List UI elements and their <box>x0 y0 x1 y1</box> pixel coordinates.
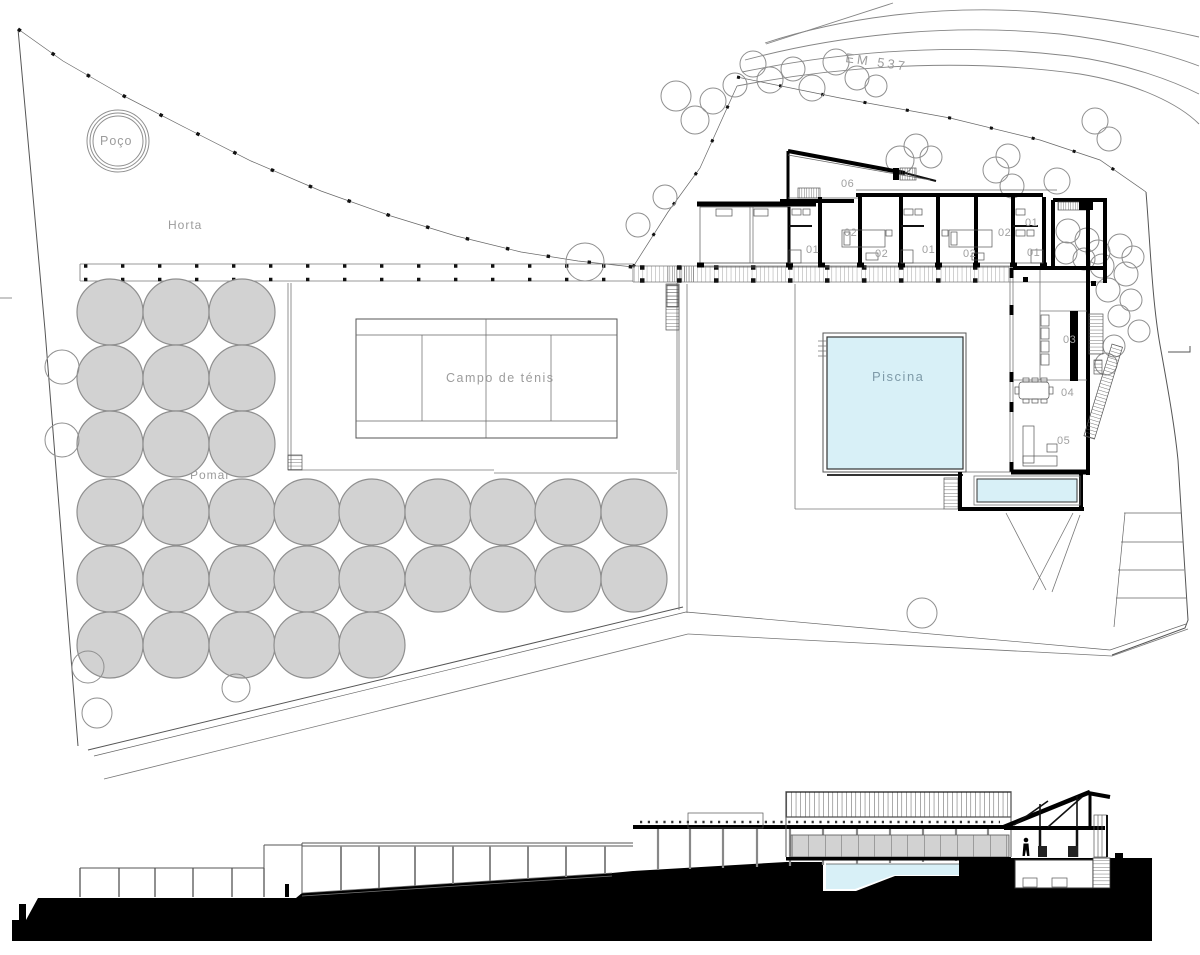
orchard-tree <box>535 546 601 612</box>
outline-tree <box>907 598 937 628</box>
outline-tree <box>1108 305 1130 327</box>
outline-tree <box>1120 289 1142 311</box>
orchard-tree <box>209 546 275 612</box>
outline-tree <box>1055 242 1077 264</box>
orchard-tree <box>77 411 143 477</box>
dining-table <box>1015 378 1053 403</box>
architectural-site-plan-and-section: EM 537 Poço Horta Pomar Campo de ténis <box>0 0 1200 955</box>
outline-tree <box>865 75 887 97</box>
outline-tree <box>222 674 250 702</box>
orchard-tree <box>339 612 405 678</box>
room-label: 03 <box>1063 334 1076 346</box>
room-label: 02 <box>963 248 976 260</box>
outline-tree <box>700 88 726 114</box>
section-truss <box>1004 792 1110 857</box>
orchard-tree <box>77 345 143 411</box>
orchard-tree <box>274 479 340 545</box>
terraced-plot <box>1114 513 1186 627</box>
room-label: 02 <box>844 227 857 239</box>
section-figure <box>1023 838 1030 856</box>
outline-tree <box>1082 108 1108 134</box>
main-pool: Piscina <box>795 284 966 509</box>
room-label: 01 <box>922 244 935 256</box>
orchard-tree <box>274 546 340 612</box>
outline-tree <box>1128 320 1150 342</box>
road-em537: EM 537 <box>737 3 1199 124</box>
orchard-tree <box>77 479 143 545</box>
orchard-tree <box>143 279 209 345</box>
orchard-tree <box>339 546 405 612</box>
outline-tree <box>661 81 691 111</box>
outline-tree <box>45 423 79 457</box>
orchard-tree <box>209 612 275 678</box>
orchard-tree <box>143 479 209 545</box>
orchard-tree <box>143 612 209 678</box>
orchard-tree <box>77 612 143 678</box>
outline-tree <box>983 157 1009 183</box>
secondary-pool-terrace <box>958 470 1084 592</box>
orchard-tree <box>77 279 143 345</box>
outline-tree <box>1056 219 1080 243</box>
outline-tree <box>920 146 942 168</box>
tennis-label: Campo de ténis <box>446 371 555 385</box>
orchard-tree <box>143 546 209 612</box>
sofa <box>1023 426 1057 466</box>
orchard-trees <box>77 279 667 678</box>
outline-tree <box>781 57 805 81</box>
garden-label: Horta <box>168 218 202 232</box>
outline-tree <box>904 134 928 158</box>
orchard-tree <box>274 612 340 678</box>
pergola-row <box>80 264 633 281</box>
outline-tree <box>1097 127 1121 151</box>
carport <box>697 204 816 263</box>
outline-tree <box>45 350 79 384</box>
room-label: 02 <box>998 227 1011 239</box>
orchard-tree <box>601 546 667 612</box>
orchard-tree <box>535 479 601 545</box>
orchard-tree <box>143 411 209 477</box>
orchard-tree <box>601 479 667 545</box>
room-label: 06 <box>841 178 854 190</box>
outline-tree <box>1108 234 1132 258</box>
tennis-court: Campo de ténis <box>356 319 617 438</box>
section-ground <box>12 858 1152 941</box>
room-label: 04 <box>1061 387 1074 399</box>
orchard-tree <box>143 345 209 411</box>
well-label: Poço <box>100 134 133 148</box>
room-label: 05 <box>1057 435 1070 447</box>
outline-tree <box>626 213 650 237</box>
outline-tree <box>653 185 677 209</box>
section-drawing <box>12 792 1152 941</box>
orchard-tree <box>405 546 471 612</box>
room-label: 01 <box>1025 217 1038 229</box>
outline-tree <box>740 51 766 77</box>
road-label: EM 537 <box>845 50 909 74</box>
room-label: 01 <box>806 244 819 256</box>
bed <box>942 230 992 247</box>
outline-tree <box>799 75 825 101</box>
room-label: 02 <box>875 248 888 260</box>
well-poco: Poço <box>87 110 149 172</box>
orchard-tree <box>470 479 536 545</box>
orchard-tree <box>209 345 275 411</box>
orchard-tree <box>209 411 275 477</box>
room-label: 01 <box>1027 247 1040 259</box>
orchard-tree <box>209 279 275 345</box>
orchard-tree <box>77 546 143 612</box>
orchard-tree <box>209 479 275 545</box>
orchard-tree <box>470 546 536 612</box>
orchard-tree <box>339 479 405 545</box>
outline-tree <box>82 698 112 728</box>
boardwalk-deck <box>633 266 1107 330</box>
orchard-tree <box>405 479 471 545</box>
pool-label: Piscina <box>872 369 924 384</box>
outline-tree <box>681 106 709 134</box>
